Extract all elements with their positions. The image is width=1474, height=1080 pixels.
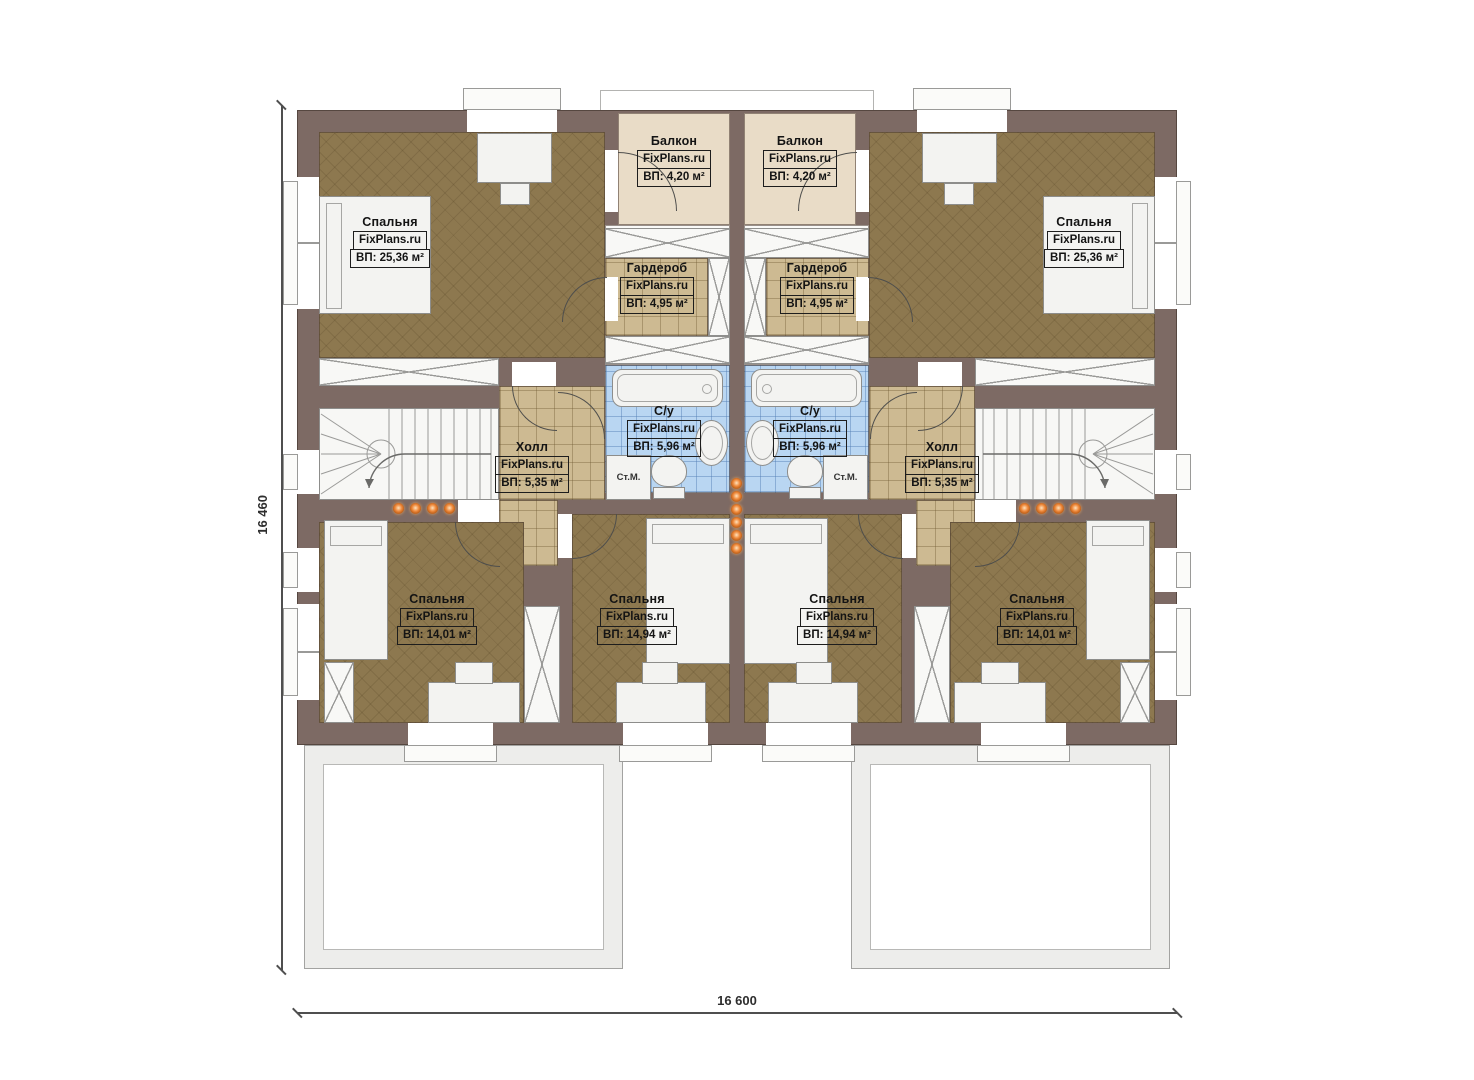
- room-area: ВП: 4,95 м²: [620, 295, 694, 314]
- room-label-bedroom-scr: Спальня FixPlans.ru ВП: 14,94 м²: [782, 592, 892, 645]
- room-label-hall-right: Холл FixPlans.ru ВП: 5,35 м²: [887, 440, 997, 493]
- brand-watermark: FixPlans.ru: [353, 231, 427, 250]
- room-label-bedroom-se: Спальня FixPlans.ru ВП: 14,01 м²: [982, 592, 1092, 645]
- room-label-bath-left: С/у FixPlans.ru ВП: 5,96 м²: [609, 404, 719, 457]
- bedroom-se-builtin-closet: [975, 358, 1155, 386]
- light-dot: [444, 503, 455, 514]
- terrace-left: [304, 745, 623, 969]
- room-name: Спальня: [609, 592, 664, 606]
- window-right-1-sill: [1176, 181, 1191, 305]
- window-right-3: [1155, 548, 1177, 592]
- light-dot: [1070, 503, 1081, 514]
- window-left-1-sill: [283, 181, 298, 305]
- dimension-line-height: [281, 105, 283, 970]
- room-area: ВП: 25,36 м²: [1044, 249, 1124, 268]
- floor-plan: Балкон FixPlans.ru ВП: 4,20 м² Балкон Fi…: [0, 0, 1474, 1080]
- bedroom-sw-builtin-closet: [319, 358, 499, 386]
- brand-watermark: FixPlans.ru: [637, 150, 711, 169]
- dresser-se-top: [981, 662, 1019, 684]
- room-area: ВП: 4,20 м²: [637, 168, 711, 187]
- window-top-right: [917, 110, 1007, 132]
- brand-watermark: FixPlans.ru: [1047, 231, 1121, 250]
- room-label-bedroom-scl: Спальня FixPlans.ru ВП: 14,94 м²: [582, 592, 692, 645]
- ottoman-master-left: [500, 183, 530, 205]
- room-name: Спальня: [809, 592, 864, 606]
- washer-right-label: Ст.М.: [823, 455, 868, 500]
- brand-watermark: FixPlans.ru: [773, 420, 847, 439]
- staircase-left: [319, 408, 499, 500]
- room-label-wardrobe-left: Гардероб FixPlans.ru ВП: 4,95 м²: [602, 261, 712, 314]
- toilet-right-tank: [789, 487, 821, 499]
- light-dot: [393, 503, 404, 514]
- brand-watermark: FixPlans.ru: [780, 277, 854, 296]
- window-top-right-sill: [913, 88, 1011, 110]
- window-bottom-scr-sill: [762, 745, 855, 762]
- ottoman-master-right: [944, 183, 974, 205]
- closet-between-bedrooms-left: [524, 606, 560, 723]
- terrace-right: [851, 745, 1170, 969]
- room-area: ВП: 25,36 м²: [350, 249, 430, 268]
- dresser-scl: [616, 682, 706, 723]
- window-bottom-sw: [408, 723, 493, 745]
- dresser-scr-top: [796, 662, 832, 684]
- room-name: Спальня: [409, 592, 464, 606]
- light-dot: [731, 543, 742, 554]
- staircase-right: [975, 408, 1155, 500]
- light-dot: [410, 503, 421, 514]
- room-area: ВП: 5,35 м²: [905, 474, 979, 493]
- window-bottom-se: [981, 723, 1066, 745]
- room-area: ВП: 14,94 м²: [597, 626, 677, 645]
- dresser-master-right: [922, 133, 997, 183]
- brand-watermark: FixPlans.ru: [905, 456, 979, 475]
- light-dot: [731, 504, 742, 515]
- room-label-bath-right: С/у FixPlans.ru ВП: 5,96 м²: [755, 404, 865, 457]
- window-bottom-scr: [766, 723, 851, 745]
- room-label-balcony-right: Балкон FixPlans.ru ВП: 4,20 м²: [745, 134, 855, 187]
- brand-watermark: FixPlans.ru: [400, 608, 474, 627]
- brand-watermark: FixPlans.ru: [1000, 608, 1074, 627]
- dresser-master-left: [477, 133, 552, 183]
- light-dot: [1053, 503, 1064, 514]
- window-left-4: [297, 604, 319, 700]
- window-left-2-sill: [283, 454, 298, 490]
- window-left-3: [297, 548, 319, 592]
- room-area: ВП: 14,01 м²: [397, 626, 477, 645]
- room-label-wardrobe-right: Гардероб FixPlans.ru ВП: 4,95 м²: [762, 261, 872, 314]
- washer-left-label: Ст.М.: [606, 455, 651, 500]
- brand-watermark: FixPlans.ru: [800, 608, 874, 627]
- room-name: Спальня: [1009, 592, 1064, 606]
- brand-watermark: FixPlans.ru: [763, 150, 837, 169]
- room-label-balcony-left: Балкон FixPlans.ru ВП: 4,20 м²: [619, 134, 729, 187]
- room-name: С/у: [654, 404, 674, 418]
- room-name: Холл: [516, 440, 548, 454]
- room-area: ВП: 14,94 м²: [797, 626, 877, 645]
- toilet-left: [651, 455, 687, 487]
- toilet-right: [787, 455, 823, 487]
- bed-se: [1086, 520, 1150, 660]
- door-balcony-right: [856, 150, 869, 212]
- brand-watermark: FixPlans.ru: [600, 608, 674, 627]
- dresser-sw: [428, 682, 520, 723]
- terrace-left-inner: [323, 764, 604, 950]
- light-dot: [427, 503, 438, 514]
- window-top-left-sill: [463, 88, 561, 110]
- room-label-master-right: Спальня FixPlans.ru ВП: 25,36 м²: [1029, 215, 1139, 268]
- dimension-line-width: [297, 1012, 1177, 1014]
- wardrobe-right-closet-bottom: [744, 336, 869, 364]
- window-bottom-sw-sill: [404, 745, 497, 762]
- light-dot: [731, 517, 742, 528]
- door-balcony-left: [605, 150, 618, 212]
- brand-watermark: FixPlans.ru: [620, 277, 694, 296]
- door-bedroom-se: [975, 500, 1016, 522]
- room-area: ВП: 5,96 м²: [627, 438, 701, 457]
- closet-sw: [324, 662, 354, 723]
- bed-sw: [324, 520, 388, 660]
- window-right-2-sill: [1176, 454, 1191, 490]
- light-dot: [731, 478, 742, 489]
- window-bottom-se-sill: [977, 745, 1070, 762]
- window-top-left: [467, 110, 557, 132]
- window-left-1: [297, 177, 319, 309]
- room-area: ВП: 14,01 м²: [997, 626, 1077, 645]
- dresser-se: [954, 682, 1046, 723]
- room-name: С/у: [800, 404, 820, 418]
- dresser-sw-top: [455, 662, 493, 684]
- closet-between-bedrooms-right: [914, 606, 950, 723]
- closet-se: [1120, 662, 1150, 723]
- light-dot: [731, 530, 742, 541]
- dresser-scl-top: [642, 662, 678, 684]
- brand-watermark: FixPlans.ru: [627, 420, 701, 439]
- room-name: Холл: [926, 440, 958, 454]
- door-hall-right: [918, 362, 962, 386]
- room-name: Балкон: [651, 134, 697, 148]
- room-name: Спальня: [362, 215, 417, 229]
- window-right-4: [1155, 604, 1177, 700]
- wardrobe-left-closet-top: [605, 228, 730, 258]
- wardrobe-left-closet-bottom: [605, 336, 730, 364]
- light-dot: [731, 491, 742, 502]
- toilet-left-tank: [653, 487, 685, 499]
- room-area: ВП: 5,35 м²: [495, 474, 569, 493]
- brand-watermark: FixPlans.ru: [495, 456, 569, 475]
- door-hall-left: [512, 362, 556, 386]
- window-bottom-scl: [623, 723, 708, 745]
- room-label-bedroom-sw: Спальня FixPlans.ru ВП: 14,01 м²: [382, 592, 492, 645]
- room-name: Балкон: [777, 134, 823, 148]
- window-right-3-sill: [1176, 552, 1191, 588]
- dimension-height-label: 16 460: [255, 495, 270, 535]
- room-label-hall-left: Холл FixPlans.ru ВП: 5,35 м²: [477, 440, 587, 493]
- room-name: Спальня: [1056, 215, 1111, 229]
- window-left-4-sill: [283, 608, 298, 696]
- room-area: ВП: 5,96 м²: [773, 438, 847, 457]
- light-dot: [1036, 503, 1047, 514]
- wardrobe-right-closet-top: [744, 228, 869, 258]
- dresser-scr: [768, 682, 858, 723]
- bathtub-left: [612, 369, 723, 407]
- room-area: ВП: 4,95 м²: [780, 295, 854, 314]
- bathtub-right: [751, 369, 862, 407]
- room-name: Гардероб: [627, 261, 688, 275]
- terrace-right-inner: [870, 764, 1151, 950]
- door-bedroom-scl: [558, 514, 572, 558]
- window-right-1: [1155, 177, 1177, 309]
- dimension-width-label: 16 600: [687, 993, 787, 1008]
- room-area: ВП: 4,20 м²: [763, 168, 837, 187]
- window-bottom-scl-sill: [619, 745, 712, 762]
- room-name: Гардероб: [787, 261, 848, 275]
- window-left-3-sill: [283, 552, 298, 588]
- room-label-master-left: Спальня FixPlans.ru ВП: 25,36 м²: [335, 215, 445, 268]
- window-left-2: [297, 450, 319, 494]
- door-bedroom-scr: [902, 514, 916, 558]
- door-bedroom-sw: [458, 500, 499, 522]
- light-dot: [1019, 503, 1030, 514]
- window-right-4-sill: [1176, 608, 1191, 696]
- window-right-2: [1155, 450, 1177, 494]
